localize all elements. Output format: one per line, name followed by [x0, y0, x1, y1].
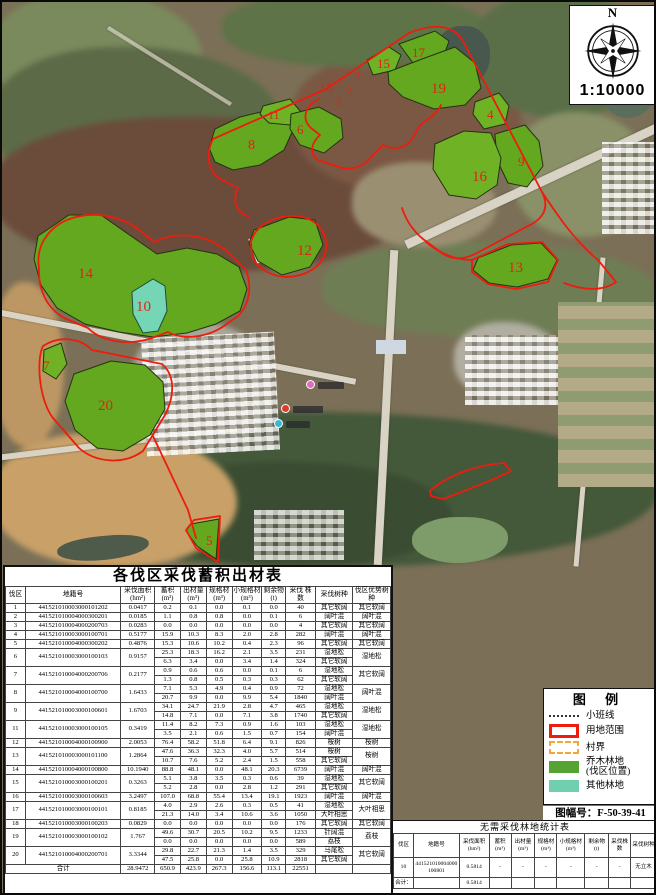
harvest-cell: 96 — [286, 639, 316, 648]
harvest-cell: 其它软阔 — [353, 774, 391, 792]
harvest-cell: 589 — [286, 837, 316, 846]
no-cut-col-header: 小规格材 (m³) — [557, 834, 585, 858]
no-cut-col-header: 蓄积 (m³) — [489, 834, 511, 858]
table-total-row: 合计：0.5814 — [394, 878, 656, 889]
harvest-cell: 湿地松 — [315, 702, 352, 711]
harvest-cell: 20.3 — [262, 765, 286, 774]
harvest-cell: 40 — [286, 603, 316, 612]
harvest-cell: 1.6433 — [121, 684, 155, 702]
plot-number-label: 10 — [136, 299, 151, 315]
harvest-cell: 1740 — [286, 711, 316, 720]
harvest-cell: 0.3 — [232, 774, 262, 783]
harvest-cell: 17 — [6, 801, 26, 819]
harvest-cell: 29.8 — [155, 846, 181, 855]
legend-item: 小班线 — [549, 711, 650, 721]
harvest-cell: 441521010004000100800 — [25, 765, 121, 774]
harvest-cell: 4.7 — [262, 702, 286, 711]
harvest-cell: 0.0 — [262, 819, 286, 828]
scale-label: 1:10000 — [580, 82, 646, 100]
harvest-cell: 58.2 — [180, 738, 206, 747]
harvest-cell: 51.8 — [206, 738, 232, 747]
harvest-cell: 0.0283 — [121, 621, 155, 630]
harvest-cell: 3.4 — [232, 657, 262, 666]
harvest-cell: 10.3 — [180, 630, 206, 639]
harvest-cell: 3.2497 — [121, 792, 155, 801]
harvest-cell: 0.6 — [206, 666, 232, 675]
harvest-cell: - — [489, 858, 511, 878]
harvest-cell: 18 — [6, 819, 26, 828]
harvest-cell: 20 — [6, 846, 26, 864]
harvest-cell: 桉树 — [353, 738, 391, 747]
harvest-cell: 2.0 — [232, 630, 262, 639]
plot-polygon-19 — [388, 47, 481, 109]
harvest-cell: 桉树 — [315, 738, 352, 747]
harvest-cell: 3.6 — [262, 810, 286, 819]
harvest-cell: 0.0 — [232, 819, 262, 828]
harvest-cell: 176 — [286, 819, 316, 828]
harvest-cell: 0.0 — [206, 711, 232, 720]
harvest-cell: 湿地松 — [353, 702, 391, 720]
table-row: 34415210100040002007030.02830.00.00.00.0… — [6, 621, 391, 630]
legend-item-label: 村界 — [586, 743, 605, 753]
harvest-col-header: 采伐树种 — [315, 587, 352, 604]
harvest-cell: 6739 — [286, 765, 316, 774]
harvest-cell: 2.1 — [232, 648, 262, 657]
plot-number-label: 15 — [377, 56, 390, 71]
harvest-cell: 441521010004000300202 — [25, 639, 121, 648]
harvest-cell: 其它软阔 — [353, 603, 391, 612]
harvest-cell: 针阔混 — [315, 828, 352, 837]
no-cut-col-header: 采伐树种 — [631, 834, 656, 858]
harvest-table-header: 伐区地籍号采伐面积 (hm²)蓄积 (m³)出材量 (m³)规格材 (m³)小规… — [6, 587, 391, 604]
no-cut-col-header: 伐区 — [394, 834, 414, 858]
harvest-cell: 441521010003000101100 — [25, 747, 121, 765]
harvest-cell: 15 — [6, 774, 26, 792]
harvest-cell: - — [585, 858, 609, 878]
harvest-cell: 9.1 — [262, 738, 286, 747]
harvest-cell: 11 — [6, 720, 26, 738]
harvest-cell: 72 — [286, 684, 316, 693]
harvest-cell: 阔叶混 — [353, 765, 391, 774]
harvest-cell: 441521010003000100101 — [25, 801, 121, 819]
harvest-cell: 阔叶混 — [353, 792, 391, 801]
harvest-cell: 其它软阔 — [315, 855, 352, 864]
harvest-cell: 329 — [286, 846, 316, 855]
harvest-cell: 10.1940 — [121, 765, 155, 774]
plot-polygon-16 — [433, 131, 501, 199]
harvest-cell: 1.3 — [155, 675, 181, 684]
harvest-cell: 113.1 — [262, 864, 286, 873]
harvest-cell: 441521010003000101202 — [25, 603, 121, 612]
table-row: 204415210100040002007013.334429.822.721.… — [6, 846, 391, 855]
harvest-cell — [489, 878, 511, 889]
harvest-cell: 阔叶混 — [315, 729, 352, 738]
harvest-cell: 19.1 — [262, 792, 286, 801]
harvest-cell: 7.1 — [232, 711, 262, 720]
harvest-cell: 0.3263 — [121, 774, 155, 792]
harvest-cell: 14.8 — [155, 711, 181, 720]
harvest-cell: 其它软阔 — [353, 819, 391, 828]
harvest-cell: 18.3 — [180, 648, 206, 657]
harvest-cell: 其它软阔 — [315, 639, 352, 648]
harvest-cell: 441521010004000200706 — [25, 666, 121, 684]
harvest-table: 伐区地籍号采伐面积 (hm²)蓄积 (m³)出材量 (m³)规格材 (m³)小规… — [5, 586, 391, 874]
map-sheet: 1234567891011121314151617181920 N 1:1000… — [0, 0, 656, 895]
plot-number-label: 17 — [412, 45, 426, 60]
no-cut-col-header: 地籍号 — [413, 834, 459, 858]
harvest-cell: 3.5 — [262, 648, 286, 657]
harvest-cell: 47.5 — [155, 855, 181, 864]
table-row: 64415210100030001001030.915725.318.316.2… — [6, 648, 391, 657]
harvest-cell: 9.5 — [262, 828, 286, 837]
harvest-cell: 441521010003000100105 — [25, 720, 121, 738]
harvest-cell: 8.2 — [180, 720, 206, 729]
harvest-cell: 1.767 — [121, 828, 155, 846]
harvest-cell: 2.1 — [180, 729, 206, 738]
harvest-col-header: 采伐面积 (hm²) — [121, 587, 155, 604]
sw-line-swatch-icon — [549, 715, 579, 717]
harvest-cell: 0.0 — [206, 837, 232, 846]
harvest-cell: 20.7 — [155, 693, 181, 702]
harvest-cell: 1.1 — [155, 612, 181, 621]
harvest-cell: 5 — [6, 639, 26, 648]
harvest-cell: 0.2177 — [121, 666, 155, 684]
table-row: 164415210100030001006033.2497107.068.855… — [6, 792, 391, 801]
harvest-cell: 其它软阔 — [315, 711, 352, 720]
harvest-cell: 2.8 — [232, 783, 262, 792]
harvest-cell: 0.0 — [206, 657, 232, 666]
harvest-col-header: 蓄积 (m³) — [155, 587, 181, 604]
harvest-cell: 其它软阔 — [315, 756, 352, 765]
harvest-cell: 其它软阔 — [315, 603, 352, 612]
harvest-cell: 7.6 — [180, 756, 206, 765]
table-row: 104415210100040001008010.5814------无立木 — [394, 858, 656, 878]
plot-number-label: 4 — [487, 107, 494, 122]
harvest-cell: 0.6 — [262, 774, 286, 783]
harvest-cell: 其它软阔 — [315, 819, 352, 828]
harvest-cell: 阔叶混 — [315, 792, 352, 801]
legend-item: 用地范围 — [549, 724, 650, 738]
plot-polygon-20 — [65, 361, 165, 451]
harvest-cell: 合计 — [6, 864, 121, 873]
harvest-cell: 0.8 — [206, 612, 232, 621]
harvest-cell: 441521010004000200703 — [25, 621, 121, 630]
harvest-cell: 34.1 — [155, 702, 181, 711]
harvest-cell: 1.2 — [262, 783, 286, 792]
harvest-cell: 0.0829 — [121, 819, 155, 828]
harvest-cell: 48.1 — [180, 765, 206, 774]
harvest-cell: 荔枝 — [353, 828, 391, 846]
plot-number-label: 13 — [508, 260, 523, 276]
harvest-cell: 3.3344 — [121, 846, 155, 864]
legend-item: 乔木林地 (伐区位置) — [549, 757, 650, 777]
harvest-cell: 0.3 — [262, 675, 286, 684]
harvest-cell: 10.7 — [155, 756, 181, 765]
harvest-cell: 0.0 — [180, 621, 206, 630]
harvest-cell: 6.4 — [232, 738, 262, 747]
harvest-cell: 441521010003000100201 — [25, 774, 121, 792]
harvest-cell: 荔枝 — [315, 837, 352, 846]
harvest-cell: 6 — [6, 648, 26, 666]
harvest-cell: 其它软阔 — [315, 783, 352, 792]
no-cut-col-header: 采伐株数 — [609, 834, 631, 858]
legend-box: 图 例 小班线用地范围村界乔木林地 (伐区位置)其他林地 — [543, 688, 656, 805]
harvest-cell: 22551 — [286, 864, 316, 873]
harvest-cell: 6 — [286, 612, 316, 621]
harvest-cell: 阔叶混 — [315, 630, 352, 639]
harvest-cell — [511, 878, 535, 889]
harvest-cell: 9 — [6, 702, 26, 720]
harvest-cell: - — [511, 858, 535, 878]
harvest-cell: 7.1 — [180, 711, 206, 720]
harvest-cell: 324 — [286, 657, 316, 666]
harvest-cell: 441521010004000100700 — [25, 684, 121, 702]
harvest-cell: 2.8 — [262, 630, 286, 639]
harvest-col-header: 伐区优势树种 — [353, 587, 391, 604]
harvest-cell: 其它软阔 — [315, 675, 352, 684]
table-row: 24415210100040003002010.01851.10.80.80.0… — [6, 612, 391, 621]
sw-red-swatch-icon — [549, 724, 579, 738]
sw-green-swatch-icon — [549, 761, 579, 773]
harvest-cell: 0.6 — [180, 666, 206, 675]
no-cut-table-box: 无需采伐林地统计表 伐区地籍号采伐面积 (hm²)蓄积 (m³)出材量 (m³)… — [392, 820, 656, 895]
harvest-cell: 0.0 — [155, 819, 181, 828]
poi-label — [286, 421, 310, 428]
plot-number-label: 9 — [518, 154, 525, 169]
plot-number-label: 12 — [297, 243, 312, 259]
harvest-cell: 马尾松 — [315, 846, 352, 855]
harvest-cell: 阔叶混 — [353, 612, 391, 621]
legend-item-label: 小班线 — [586, 711, 615, 721]
harvest-cell: 514 — [286, 747, 316, 756]
harvest-cell: 0.0 — [232, 666, 262, 675]
no-cut-table: 伐区地籍号采伐面积 (hm²)蓄积 (m³)出材量 (m³)规格材 (m³)小规… — [393, 833, 656, 889]
harvest-col-header: 规格材 (m³) — [206, 587, 232, 604]
harvest-cell: 49.6 — [155, 828, 181, 837]
harvest-cell: 0.1 — [262, 666, 286, 675]
harvest-cell: 10.2 — [206, 639, 232, 648]
table-row: 184415210100030001002030.08290.00.00.00.… — [6, 819, 391, 828]
harvest-cell: 1.5 — [262, 756, 286, 765]
plot-number-label: 20 — [98, 398, 113, 414]
poi-label — [318, 382, 344, 389]
harvest-cell: - — [535, 858, 557, 878]
sw-teal-swatch-icon — [549, 780, 579, 792]
compass-box: N 1:10000 — [569, 5, 656, 105]
harvest-cell: 0.0 — [155, 837, 181, 846]
harvest-cell: 4.0 — [232, 747, 262, 756]
harvest-cell: 9.9 — [180, 693, 206, 702]
harvest-col-header: 剩余物 (t) — [262, 587, 286, 604]
north-label: N — [608, 6, 617, 20]
harvest-cell: 0.4876 — [121, 639, 155, 648]
harvest-cell: 其它软阔 — [353, 639, 391, 648]
harvest-cell: 2818 — [286, 855, 316, 864]
harvest-cell — [585, 878, 609, 889]
harvest-cell: 0.0 — [232, 612, 262, 621]
harvest-cell: 21.3 — [206, 846, 232, 855]
harvest-cell: 0.0417 — [121, 603, 155, 612]
legend-item-label: 乔木林地 (伐区位置) — [586, 757, 630, 777]
harvest-cell: 11.4 — [155, 720, 181, 729]
harvest-cell: 0.0 — [180, 819, 206, 828]
table-row: 54415210100040003002020.487615.310.610.2… — [6, 639, 391, 648]
harvest-cell: 0.9157 — [121, 648, 155, 666]
harvest-cell: 103 — [286, 720, 316, 729]
harvest-cell: 阔叶混 — [315, 693, 352, 702]
harvest-cell: 88.8 — [155, 765, 181, 774]
plot-number-label: 7 — [43, 358, 50, 373]
harvest-cell: 441521010004000300201 — [25, 612, 121, 621]
harvest-cell: 423.9 — [180, 864, 206, 873]
harvest-cell: 1.4 — [232, 846, 262, 855]
sw-village-swatch-icon — [549, 741, 579, 754]
harvest-cell: 291 — [286, 783, 316, 792]
harvest-cell: 0.0 — [206, 765, 232, 774]
harvest-cell: 0.5814 — [459, 858, 489, 878]
harvest-cell: 阔叶混 — [353, 630, 391, 639]
harvest-cell: 441521010004000100900 — [25, 738, 121, 747]
plot-number-label: 19 — [431, 81, 446, 97]
harvest-cell — [535, 878, 557, 889]
harvest-cell: 441521010003000100103 — [25, 648, 121, 666]
harvest-cell: 15.9 — [155, 630, 181, 639]
harvest-cell: 0.4 — [232, 684, 262, 693]
harvest-cell: 3.4 — [206, 810, 232, 819]
table-row: 194415210100030001001021.76749.630.720.5… — [6, 828, 391, 837]
harvest-cell: 0.0185 — [121, 612, 155, 621]
harvest-cell: 0.9 — [262, 684, 286, 693]
legend-item: 其他林地 — [549, 780, 650, 792]
harvest-cell: 154 — [286, 729, 316, 738]
harvest-cell: 0.0 — [262, 621, 286, 630]
harvest-cell: 3.5 — [206, 774, 232, 783]
harvest-cell: 桉树 — [315, 747, 352, 756]
poi-marker-icon — [306, 380, 315, 389]
harvest-cell: 36.3 — [180, 747, 206, 756]
harvest-cell: 阔叶混 — [315, 612, 352, 621]
harvest-cell: 0.3 — [232, 801, 262, 810]
harvest-cell: 大叶相思 — [353, 801, 391, 819]
poi-label — [293, 406, 323, 413]
harvest-cell: 湿地松 — [353, 720, 391, 738]
harvest-cell: 0.3 — [232, 675, 262, 684]
harvest-cell: 39 — [286, 774, 316, 783]
harvest-cell — [315, 864, 352, 873]
plot-polygons — [34, 31, 557, 559]
harvest-cell: 10.9 — [262, 855, 286, 864]
harvest-cell: 282 — [286, 630, 316, 639]
harvest-cell: 76.4 — [155, 738, 181, 747]
plot-number-label: 1 — [356, 70, 361, 80]
harvest-cell: 0.0 — [180, 837, 206, 846]
harvest-cell: 441521010003000100701 — [25, 630, 121, 639]
table-row: 174415210100030001001010.81854.02.92.60.… — [6, 801, 391, 810]
harvest-cell: 0.2 — [155, 603, 181, 612]
harvest-cell: 441521010003000100601 — [25, 702, 121, 720]
harvest-cell: 465 — [286, 702, 316, 711]
harvest-cell: 3.5 — [262, 846, 286, 855]
table-total-row: 合计28.9472650.9423.9267.3156.6113.122551 — [6, 864, 391, 873]
harvest-cell: 13.4 — [232, 792, 262, 801]
harvest-cell — [413, 878, 459, 889]
harvest-cell: 0.4 — [232, 639, 262, 648]
harvest-cell: 4 — [286, 621, 316, 630]
harvest-cell: 15.3 — [155, 639, 181, 648]
harvest-cell: 3.8 — [262, 711, 286, 720]
harvest-cell: 48.1 — [232, 765, 262, 774]
harvest-cell: 441521010003000100203 — [25, 819, 121, 828]
harvest-cell: 7.1 — [155, 684, 181, 693]
harvest-cell: 0.9 — [232, 720, 262, 729]
harvest-cell: 0.0 — [206, 783, 232, 792]
harvest-cell: 0.9 — [155, 666, 181, 675]
harvest-cell: 湿地松 — [315, 648, 352, 657]
no-cut-table-header: 伐区地籍号采伐面积 (hm²)蓄积 (m³)出材量 (m³)规格材 (m³)小规… — [394, 834, 656, 858]
plot-number-label: 14 — [78, 266, 94, 282]
plot-number-label: 18 — [320, 80, 333, 95]
plot-number-label: 3 — [336, 98, 341, 108]
harvest-cell: 55.4 — [206, 792, 232, 801]
harvest-cell: 1.5 — [232, 729, 262, 738]
harvest-cell: 107.0 — [155, 792, 181, 801]
harvest-cell: 25.8 — [232, 855, 262, 864]
harvest-cell — [631, 878, 656, 889]
table-row: 1444152101000400010080010.194088.848.10.… — [6, 765, 391, 774]
table-row: 74415210100040002007060.21770.90.60.60.0… — [6, 666, 391, 675]
harvest-cell: 1050 — [286, 810, 316, 819]
harvest-cell: 0.0 — [206, 819, 232, 828]
harvest-cell: 3 — [6, 621, 26, 630]
harvest-cell: 1923 — [286, 792, 316, 801]
harvest-col-header: 小规格材 (m³) — [232, 587, 262, 604]
harvest-cell: 湿地松 — [353, 648, 391, 666]
harvest-cell: 5.4 — [262, 693, 286, 702]
harvest-cell: 10.2 — [232, 828, 262, 837]
harvest-cell: 湿地松 — [315, 720, 352, 729]
harvest-cell: 5.3 — [180, 684, 206, 693]
sheet-number-label: 图幅号：F-50-39-41 — [543, 806, 656, 821]
harvest-cell: 231 — [286, 648, 316, 657]
table-row: 84415210100040001007001.64337.15.34.90.4… — [6, 684, 391, 693]
harvest-cell: 558 — [286, 756, 316, 765]
harvest-cell: 21.9 — [206, 702, 232, 711]
harvest-cell: 2.8 — [180, 783, 206, 792]
harvest-cell: 0.5 — [262, 801, 286, 810]
harvest-table-title: 各伐区采伐蓄积出材表 — [5, 567, 391, 586]
harvest-cell: 0.5177 — [121, 630, 155, 639]
no-cut-col-header: 出材量 (m³) — [511, 834, 535, 858]
harvest-cell: 7.3 — [206, 720, 232, 729]
harvest-cell: 7 — [6, 666, 26, 684]
harvest-cell: 2.9 — [180, 801, 206, 810]
harvest-cell: 其它软阔 — [315, 657, 352, 666]
harvest-table-box: 各伐区采伐蓄积出材表 伐区地籍号采伐面积 (hm²)蓄积 (m³)出材量 (m³… — [3, 565, 393, 895]
harvest-cell: 1.4 — [262, 657, 286, 666]
harvest-cell: 41 — [286, 801, 316, 810]
harvest-cell: 0.6 — [206, 729, 232, 738]
harvest-cell: 267.3 — [206, 864, 232, 873]
harvest-cell: 2.3 — [262, 639, 286, 648]
harvest-cell: 1.2864 — [121, 747, 155, 765]
plot-number-label: 16 — [472, 169, 488, 185]
harvest-cell: 826 — [286, 738, 316, 747]
harvest-cell: 19 — [6, 828, 26, 846]
harvest-cell: 0.0 — [262, 603, 286, 612]
legend-title: 图 例 — [549, 692, 650, 708]
harvest-cell: 441521010004000200701 — [25, 846, 121, 864]
harvest-cell: 0.0 — [206, 621, 232, 630]
